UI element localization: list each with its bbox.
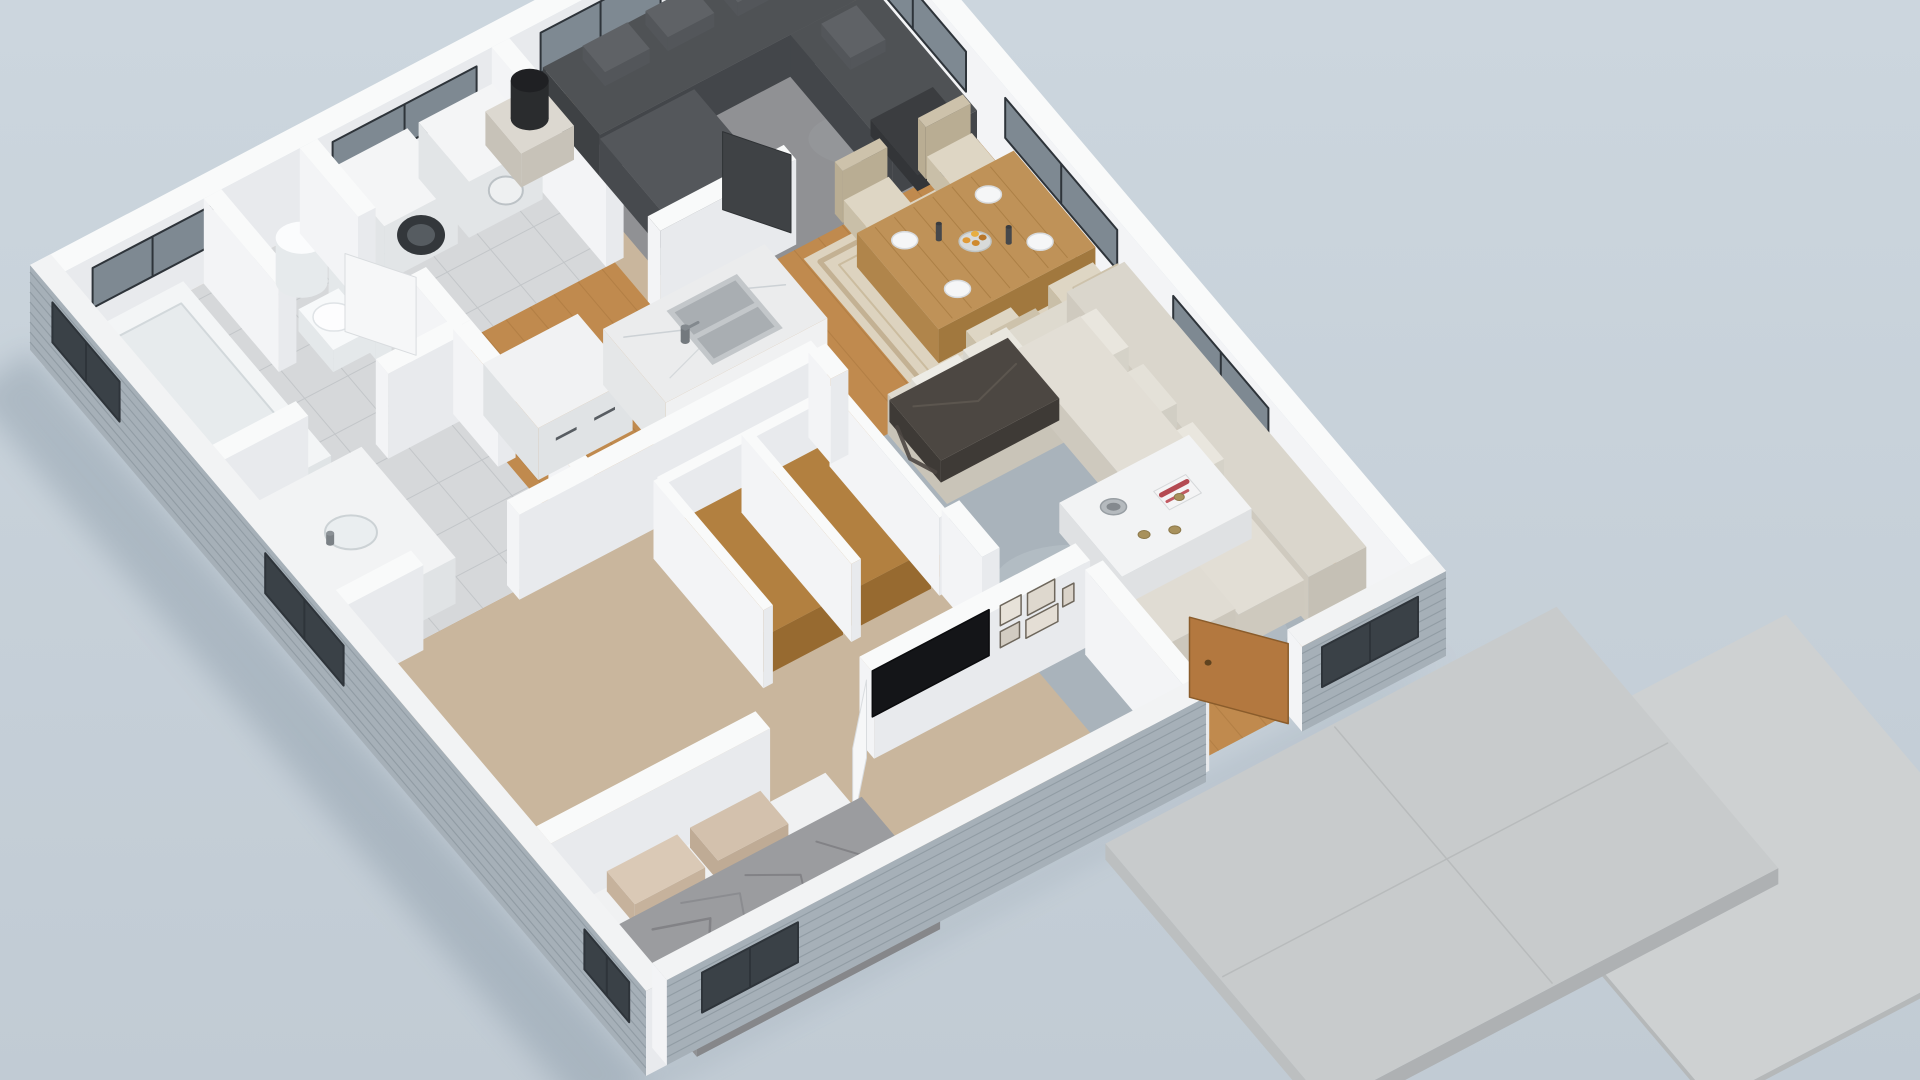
decor-gold-bowl xyxy=(1138,531,1150,539)
dining-chair-back xyxy=(835,162,843,223)
decor-gold-bowl xyxy=(1169,526,1181,534)
dinner-plate xyxy=(975,186,1001,203)
washer-door-glass xyxy=(407,224,435,246)
closet-wall xyxy=(851,559,861,642)
exterior-wall-south xyxy=(652,963,667,1065)
exterior-wall-south xyxy=(1287,629,1302,731)
candlestick xyxy=(936,224,942,240)
dinner-plate xyxy=(945,280,971,297)
decor-bowl-silver-inner xyxy=(1107,503,1121,511)
candlestick xyxy=(1006,225,1012,229)
closet-wall xyxy=(763,605,773,688)
dining-chair-back xyxy=(918,118,926,179)
floorplan-scene xyxy=(0,0,1920,1080)
door-handle xyxy=(1205,660,1212,666)
fruit xyxy=(979,234,987,240)
wall-hall-living xyxy=(831,370,849,464)
candlestick xyxy=(1006,227,1012,243)
dinner-plate xyxy=(1027,233,1053,250)
dinner-plate xyxy=(892,232,918,249)
floorplan-3d-render xyxy=(0,0,1920,1080)
wall-hall-north xyxy=(507,500,519,600)
vanity-faucet xyxy=(326,531,334,536)
fruit xyxy=(962,237,970,243)
decor-gold-bowl xyxy=(1174,494,1184,501)
den-table-lamp xyxy=(511,69,549,93)
fruit xyxy=(972,240,980,246)
candlestick xyxy=(936,222,942,226)
fruit xyxy=(971,231,979,237)
wall-bath-south xyxy=(376,359,388,459)
